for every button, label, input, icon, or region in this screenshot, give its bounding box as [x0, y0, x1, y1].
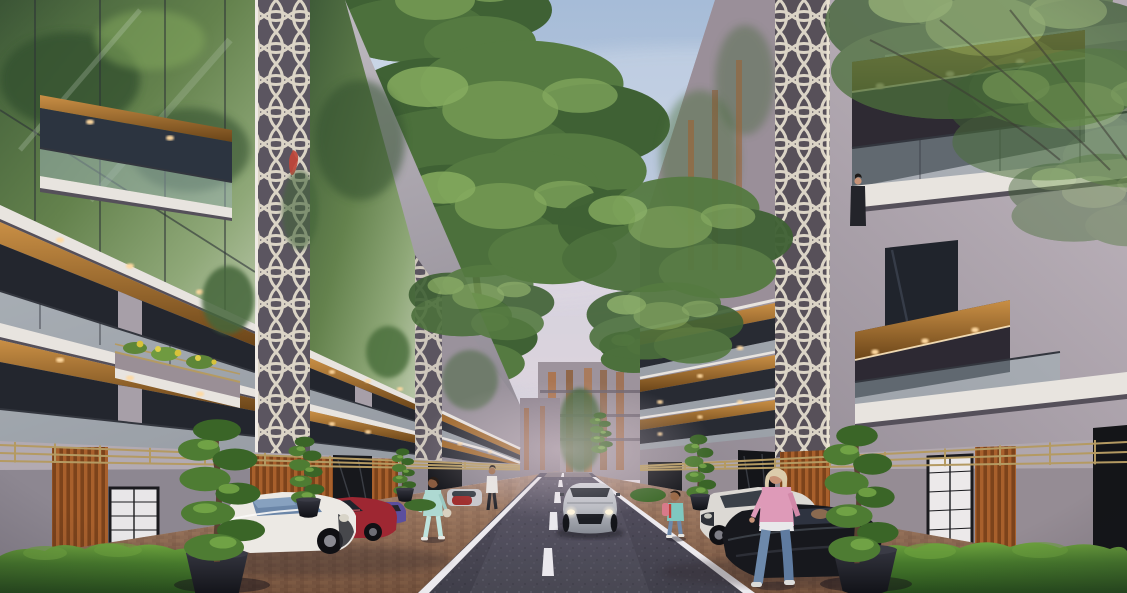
- atmosphere: [0, 0, 1127, 593]
- vignette: [0, 0, 1127, 593]
- architectural-render-scene: [0, 0, 1127, 593]
- scene-canvas: [0, 0, 1127, 593]
